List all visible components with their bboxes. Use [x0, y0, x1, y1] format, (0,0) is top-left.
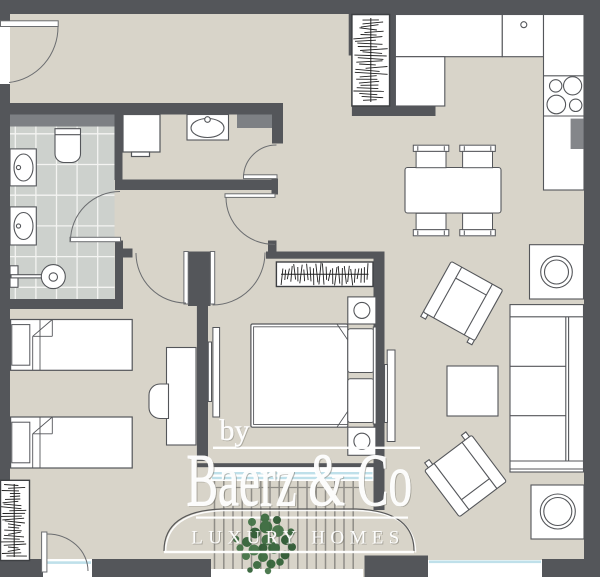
svg-text:LUXURY HOMES: LUXURY HOMES	[191, 527, 404, 548]
svg-text:Baerz & Co: Baerz & Co	[186, 438, 412, 522]
